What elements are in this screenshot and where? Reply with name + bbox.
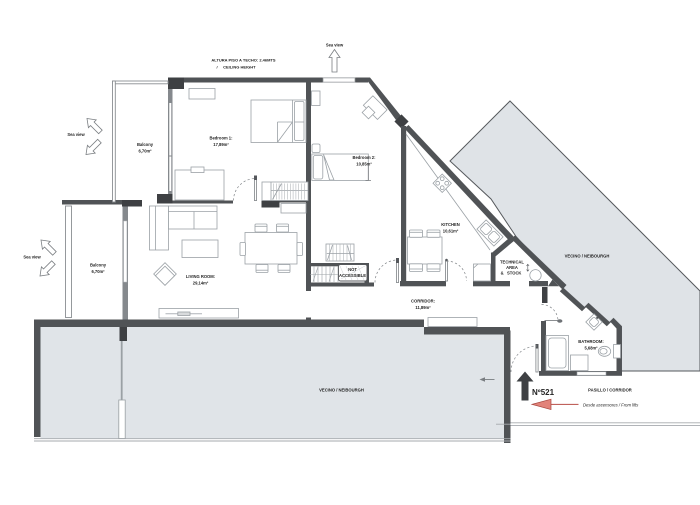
svg-text:Bedroom 1:: Bedroom 1: bbox=[209, 136, 232, 141]
svg-text:VECINO / NEIBOURGH: VECINO / NEIBOURGH bbox=[319, 388, 364, 393]
svg-text:Bedroom 2:: Bedroom 2: bbox=[352, 155, 375, 160]
svg-text:ACCESSIBLE: ACCESSIBLE bbox=[339, 273, 366, 278]
svg-text:PASILLO / CORRIDOR: PASILLO / CORRIDOR bbox=[588, 388, 632, 393]
svg-text:Nº521: Nº521 bbox=[532, 388, 555, 397]
svg-text:6,70m²: 6,70m² bbox=[91, 269, 105, 274]
svg-text:LIVING ROOM:: LIVING ROOM: bbox=[186, 274, 215, 279]
svg-text:ALTURA PISO A TECHO: 2.46MTS: ALTURA PISO A TECHO: 2.46MTS bbox=[211, 58, 275, 63]
svg-text:Sea view: Sea view bbox=[326, 43, 344, 48]
svg-text:6,70m²: 6,70m² bbox=[138, 149, 152, 154]
svg-text:Sea view: Sea view bbox=[23, 255, 41, 260]
svg-text:CORRIDOR:: CORRIDOR: bbox=[411, 299, 435, 304]
svg-text:AREA: AREA bbox=[506, 265, 518, 270]
svg-text:11,89m²: 11,89m² bbox=[415, 305, 431, 310]
svg-text:10,61m²: 10,61m² bbox=[443, 229, 459, 234]
svg-text:Sea view: Sea view bbox=[67, 132, 85, 137]
svg-text:10,85m²: 10,85m² bbox=[356, 162, 372, 167]
svg-text:TECHNICAL: TECHNICAL bbox=[500, 260, 524, 265]
svg-text:Balcony: Balcony bbox=[137, 142, 154, 147]
svg-text:& STOCK: & STOCK bbox=[501, 271, 522, 276]
svg-text:NOT: NOT bbox=[348, 267, 357, 272]
svg-text:VECINO / NEIBOURGH: VECINO / NEIBOURGH bbox=[565, 254, 610, 259]
svg-text:5,68m²: 5,68m² bbox=[584, 346, 598, 351]
svg-text:Balcony: Balcony bbox=[90, 263, 107, 268]
svg-text:17,89m²: 17,89m² bbox=[213, 142, 229, 147]
svg-text:Desde ascensores / From lifts: Desde ascensores / From lifts bbox=[583, 402, 639, 407]
svg-text:29,14m²: 29,14m² bbox=[193, 281, 209, 286]
svg-text:KITCHEN: KITCHEN bbox=[441, 222, 459, 227]
svg-text:/ CEILING HEIGHT: / CEILING HEIGHT bbox=[216, 65, 256, 70]
svg-text:BATHROOM:: BATHROOM: bbox=[578, 339, 603, 344]
